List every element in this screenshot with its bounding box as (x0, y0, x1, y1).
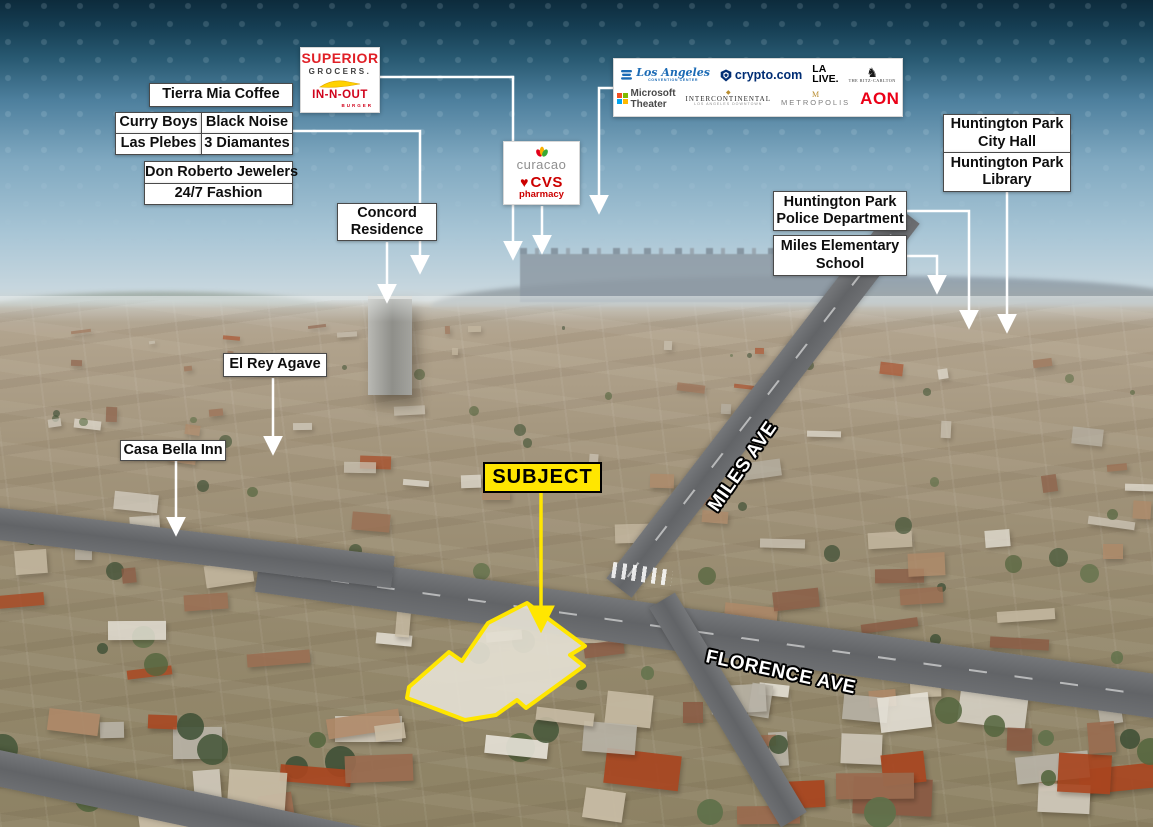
logo-box-downtown-venues: Los Angeles CONVENTION CENTER crypto.com… (613, 58, 903, 117)
metropolis-text: METROPOLIS (781, 99, 850, 107)
callout-line: Miles Elementary (774, 238, 906, 255)
la-convention-script: Los Angeles (636, 68, 710, 78)
in-n-out-logo: IN-N-OUT (312, 90, 368, 102)
callout-3-diamantes: 3 Diamantes (201, 133, 293, 155)
la-convention-center-logo: Los Angeles CONVENTION CENTER (620, 68, 710, 82)
ritz-lion-icon: ♞ (866, 67, 878, 79)
callout-casa-bella-inn: Casa Bella Inn (120, 440, 226, 461)
la-convention-sub: CONVENTION CENTER (648, 78, 698, 82)
in-n-out-burger-text: BURGER (341, 103, 373, 109)
callout-miles-elementary-school: Miles Elementary School (773, 235, 907, 276)
crypto-com-text: crypto.com (735, 68, 802, 82)
callout-el-rey-agave: El Rey Agave (223, 353, 327, 377)
logo-row-1: Los Angeles CONVENTION CENTER crypto.com… (618, 65, 898, 84)
callout-concord-residence: Concord Residence (337, 203, 437, 241)
callout-line: Residence (338, 222, 436, 239)
callout-huntington-park-library: Huntington Park Library (943, 152, 1071, 192)
cvs-pharmacy-text: pharmacy (519, 190, 564, 200)
callout-line: School (774, 256, 906, 273)
convention-center-icon (620, 69, 633, 81)
superior-grocers-logo-sub: GROCERS. (309, 66, 372, 77)
callout-line: City Hall (944, 134, 1070, 151)
subject-callout: SUBJECT (483, 462, 602, 493)
intercontinental-sub: LOS ANGELES DOWNTOWN (694, 103, 762, 107)
callout-line: Police Department (774, 211, 906, 228)
microsoft-theater-text: Microsoft Theater (631, 88, 676, 110)
curacao-text: curacao (517, 158, 567, 171)
cvs-text: CVS (530, 175, 562, 190)
callout-las-plebes: Las Plebes (115, 133, 202, 155)
logo-box-superior-innout: SUPERIOR GROCERS. IN-N-OUT BURGER (300, 47, 380, 113)
innout-arrow-icon (319, 78, 361, 89)
callout-line: Huntington Park (774, 194, 906, 211)
cvs-logo: ♥ CVS (520, 175, 563, 190)
callout-line: Library (944, 172, 1070, 189)
callout-huntington-park-city-hall: Huntington Park City Hall (943, 114, 1071, 153)
callout-line: Huntington Park (944, 155, 1070, 172)
microsoft-theater-logo: Microsoft Theater (617, 88, 676, 110)
cvs-heart-icon: ♥ (520, 175, 528, 189)
callout-tierra-mia-coffee: Tierra Mia Coffee (149, 83, 293, 107)
aerial-map: MILES AVE FLORENCE AVE Tierra Mia Coffee… (0, 0, 1153, 827)
callout-black-noise: Black Noise (201, 112, 293, 134)
callout-curry-boys: Curry Boys (115, 112, 202, 134)
ritz-carlton-logo: ♞ THE RITZ-CARLTON (849, 67, 896, 83)
callout-huntington-park-police-department: Huntington Park Police Department (773, 191, 907, 231)
callout-line: Huntington Park (944, 116, 1070, 133)
logo-row-2: Microsoft Theater ◆ INTERCONTINENTAL LOS… (618, 88, 898, 110)
crypto-shield-icon (720, 69, 732, 82)
curacao-flame-icon (534, 146, 550, 158)
aon-logo: AON (860, 89, 899, 109)
logo-box-curacao-cvs: curacao ♥ CVS pharmacy (503, 141, 580, 205)
callout-24-7-fashion: 24/7 Fashion (144, 183, 293, 205)
ritz-carlton-text: THE RITZ-CARLTON (849, 79, 896, 83)
la-live-bottom: LIVE. (812, 75, 838, 85)
superior-grocers-logo: SUPERIOR (301, 51, 378, 65)
callout-don-roberto-jewelers: Don Roberto Jewelers (144, 161, 293, 184)
metropolis-logo: M METROPOLIS (781, 91, 850, 107)
microsoft-squares-icon (617, 93, 628, 104)
la-live-logo: LA LIVE. (812, 65, 838, 84)
crypto-com-logo: crypto.com (720, 68, 802, 82)
intercontinental-logo: ◆ INTERCONTINENTAL LOS ANGELES DOWNTOWN (686, 90, 771, 107)
callout-line: Concord (338, 205, 436, 222)
subject-parcel-outline (407, 603, 585, 720)
